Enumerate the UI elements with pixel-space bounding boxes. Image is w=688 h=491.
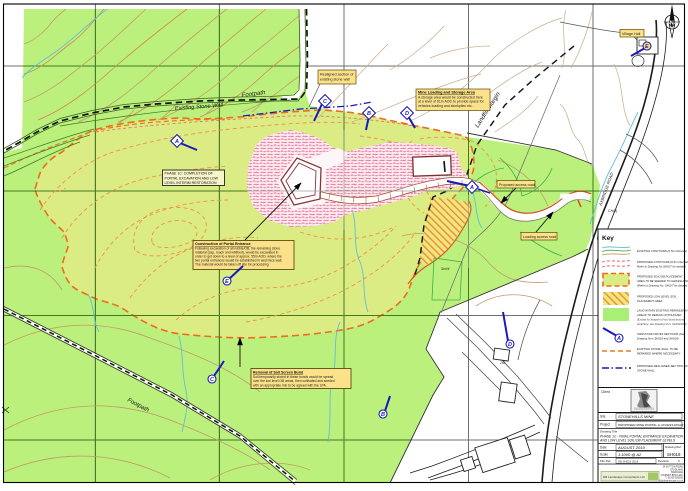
svg-text:163: 163 <box>500 361 506 365</box>
svg-text:PROPOSED REALIGNED SECTION OF: PROPOSED REALIGNED SECTION OF <box>637 364 688 368</box>
svg-text:INDICATIVE CROSS SECTIONS (See: INDICATIVE CROSS SECTIONS (See <box>637 332 685 336</box>
svg-text:SmW: SmW <box>441 267 450 271</box>
svg-text:Mine Loading and Storage Area: Mine Loading and Storage Area <box>418 91 476 95</box>
svg-text:DB Landscape Consultants Ltd: DB Landscape Consultants Ltd <box>603 475 645 479</box>
svg-text:vehicles loading and stockpile: vehicles loading and stockpiles etc. <box>418 104 473 108</box>
svg-text:PORTAL EXCAVATION AND LOW: PORTAL EXCAVATION AND LOW <box>165 176 219 180</box>
svg-text:Realigned section of: Realigned section of <box>320 73 354 77</box>
svg-text:DB SH019 2019: DB SH019 2019 <box>618 459 639 463</box>
svg-text:The material would be taken of: The material would be taken off site for… <box>195 262 269 266</box>
svg-text:Drawing No's SH018 and SH019): Drawing No's SH018 and SH019) <box>637 337 679 341</box>
svg-text:A: A <box>616 336 621 342</box>
svg-text:(Refer to Drawing No. SH017 fo: (Refer to Drawing No. SH017 for details) <box>637 284 687 288</box>
svg-text:STONE WALL: STONE WALL <box>637 369 655 373</box>
svg-text:N: N <box>670 21 674 27</box>
svg-text:PROPOSED MINE PORTAL & ACCESS: PROPOSED MINE PORTAL & ACCESS ROAD <box>618 423 684 427</box>
svg-text:REPAIRED WHERE NECESSARY: REPAIRED WHERE NECESSARY <box>637 352 681 356</box>
svg-text:Village Hall: Village Hall <box>622 32 641 36</box>
svg-text:1:1000 @ A2: 1:1000 @ A2 <box>618 452 642 457</box>
svg-text:Date: Date <box>600 446 607 450</box>
svg-text:(Except for footprint of soil: (Except for footprint of soil bund aroun… <box>637 318 685 322</box>
svg-text:PROPOSED LOW LEVEL SOIL: PROPOSED LOW LEVEL SOIL <box>637 295 677 299</box>
svg-text:Loading access road: Loading access road <box>523 235 556 239</box>
svg-text:B: B <box>367 111 371 117</box>
svg-text:Removal of Soil Screen Bund: Removal of Soil Screen Bund <box>253 370 303 374</box>
svg-text:AUGUST 2019: AUGUST 2019 <box>617 445 645 450</box>
svg-text:LAND WITHIN EXISTING PERMISSIO: LAND WITHIN EXISTING PERMISSION <box>637 309 688 313</box>
svg-text:Key: Key <box>602 235 614 242</box>
svg-text:EXISTING CONTOURS (0.5m interv: EXISTING CONTOURS (0.5m intervals) <box>637 249 687 253</box>
svg-text:A: A <box>469 185 474 191</box>
svg-text:SH019: SH019 <box>667 452 681 457</box>
svg-text:Drawing Title: Drawing Title <box>600 430 618 434</box>
svg-text:CH(z): CH(z) <box>608 209 617 213</box>
svg-text:STONEHILLS MINE: STONEHILLS MINE <box>618 414 654 419</box>
svg-text:E: E <box>225 279 229 285</box>
svg-text:Proposed access road: Proposed access road <box>499 183 535 187</box>
svg-text:AREA TO BE SEEDED TO GRASSLAND: AREA TO BE SEEDED TO GRASSLAND <box>636 279 688 283</box>
svg-text:AREAS TO REMAIN UNTOUCHED: AREAS TO REMAIN UNTOUCHED <box>636 313 681 317</box>
svg-text:E: E <box>645 44 649 50</box>
svg-text:A: A <box>174 139 179 145</box>
svg-text:D: D <box>405 111 409 117</box>
svg-text:Scale: Scale <box>600 453 608 457</box>
svg-text:Client: Client <box>601 390 610 394</box>
svg-text:Site: Site <box>600 415 606 419</box>
svg-text:Drawing Ref: Drawing Ref <box>665 445 681 449</box>
svg-text:B: B <box>381 412 385 418</box>
svg-text:Revision: Revision <box>658 459 669 463</box>
svg-text:LEVEL INTERIM RESTORATION: LEVEL INTERIM RESTORATION <box>165 181 218 185</box>
svg-text:PHASE 1C: COMPLETION OF: PHASE 1C: COMPLETION OF <box>165 172 213 176</box>
svg-text:Project: Project <box>600 423 610 427</box>
svg-text:PLACEMENT AREA: PLACEMENT AREA <box>637 299 663 303</box>
svg-text:PROPOSED SOIL/OB PLACEMENT: PROPOSED SOIL/OB PLACEMENT <box>637 275 683 279</box>
svg-text:EXISTING STONE WALL TO BE: EXISTING STONE WALL TO BE <box>637 347 678 351</box>
svg-text:PROPOSED CONTOURS (0.5m interv: PROPOSED CONTOURS (0.5m intervals <box>637 260 688 264</box>
svg-text:with an appropriate mix to be: with an appropriate mix to be agreed wit… <box>253 384 327 388</box>
svg-text:File Ref: File Ref <box>600 459 611 463</box>
svg-text:Construction of Portal Entranc: Construction of Portal Entrance <box>195 242 251 246</box>
svg-text:existing stone wall: existing stone wall <box>320 78 350 82</box>
svg-text:D: D <box>508 342 512 348</box>
svg-text:AND LOW LEVEL SOIL/OB PLACEMEN: AND LOW LEVEL SOIL/OB PLACEMENT LEVELS <box>599 439 676 443</box>
svg-text:Refer to Drawing No SH017 for: Refer to Drawing No SH017 for details) <box>637 265 686 269</box>
svg-text:periphery; see Drawing No's. S: periphery; see Drawing No's. SH014/015) <box>636 322 687 326</box>
